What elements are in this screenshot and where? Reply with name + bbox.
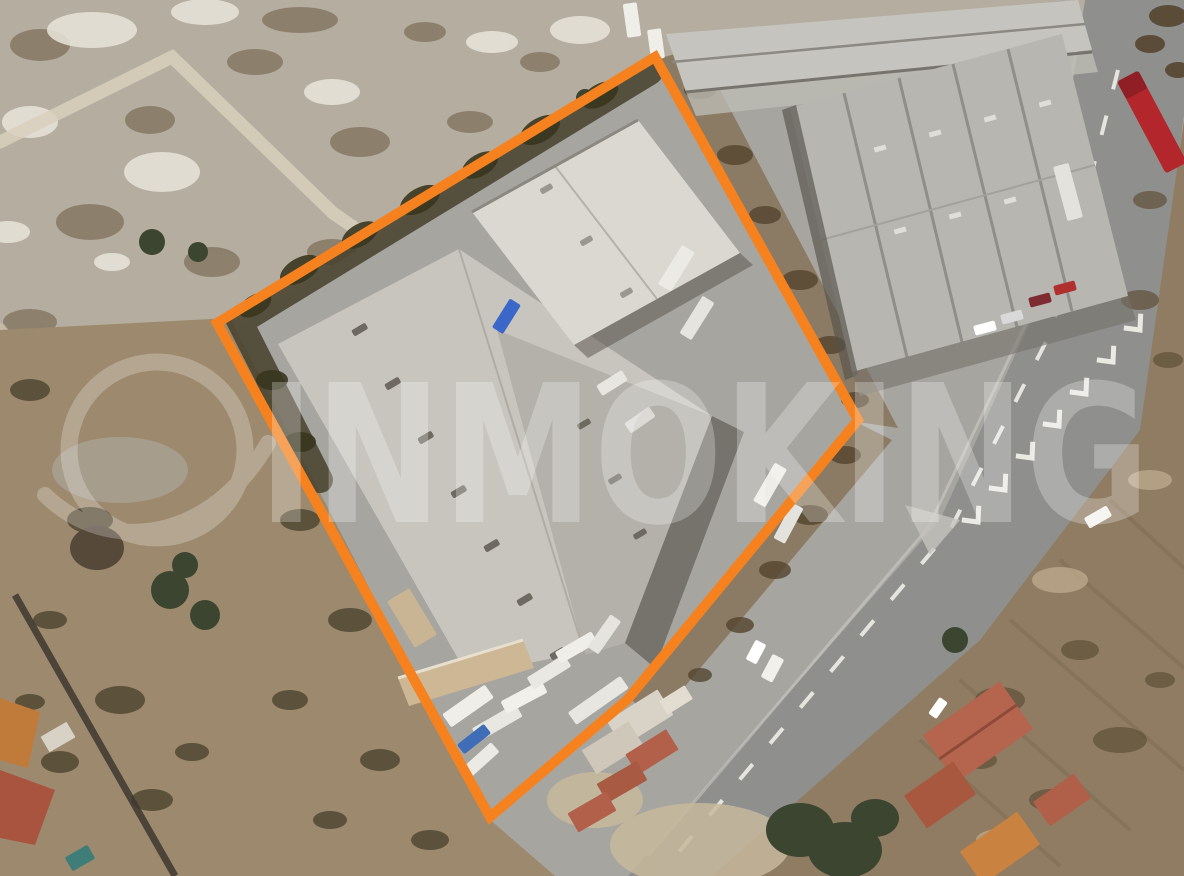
satellite-image: INMOKING [0, 0, 1184, 876]
aerial-photo: INMOKING [0, 0, 1184, 876]
watermark-text: INMOKING [258, 345, 1150, 568]
